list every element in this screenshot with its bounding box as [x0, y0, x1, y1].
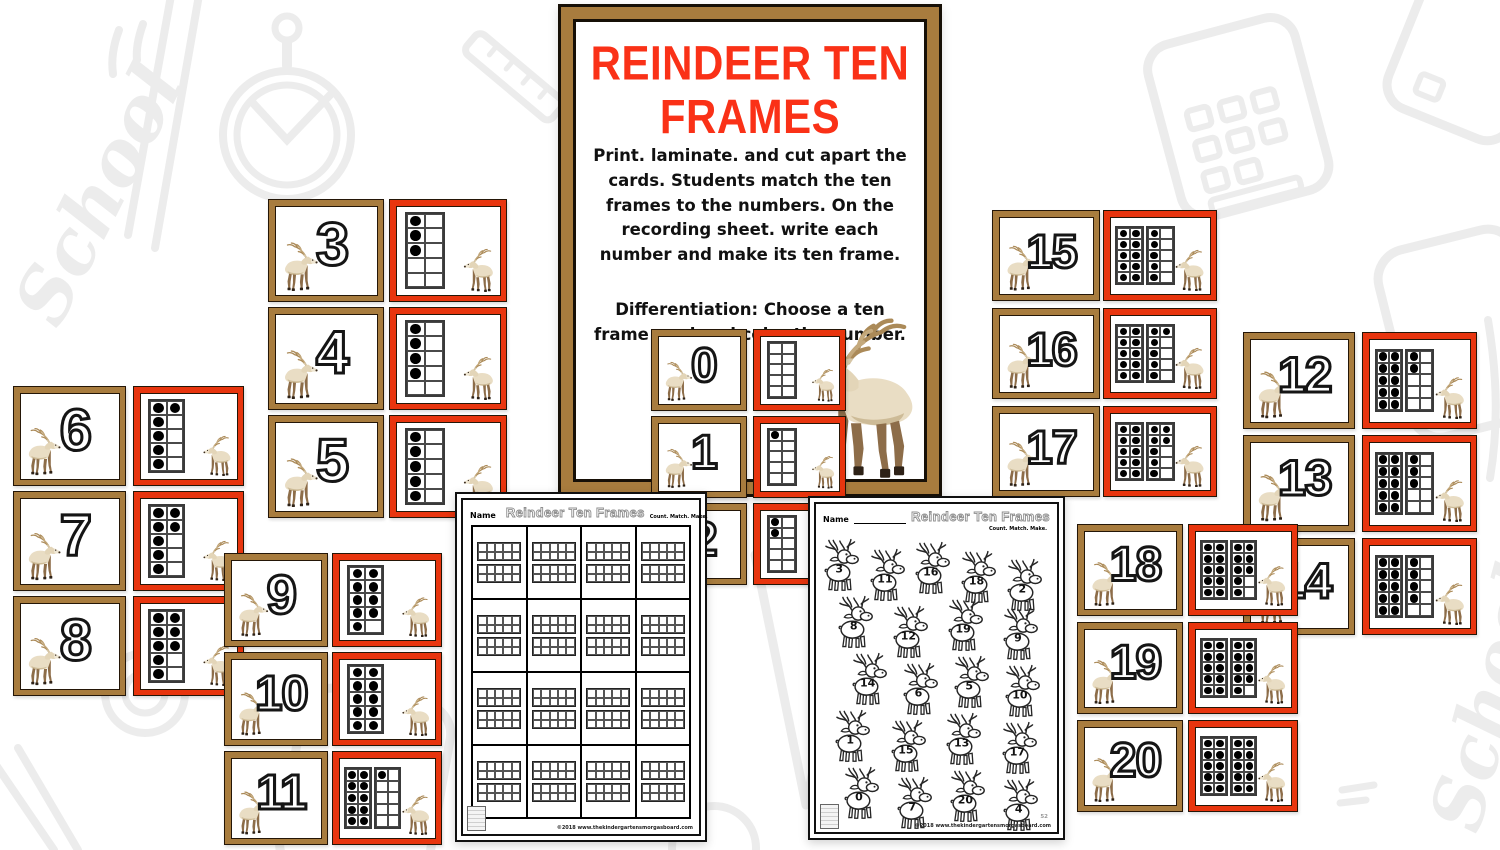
mini-frame-cell [612, 720, 620, 729]
card-group-3-4-5: 345 [268, 199, 507, 518]
frame-cell [167, 415, 184, 429]
frame-cell [1377, 477, 1389, 489]
counter-dot [1132, 459, 1140, 467]
mini-frame-cell [667, 711, 675, 720]
mini-frame-cell [566, 625, 574, 634]
mini-frame-cell [512, 711, 520, 720]
counter-dot [369, 681, 378, 690]
mini-frame-cell [659, 793, 667, 802]
ten-frame [344, 767, 372, 829]
frame-cell [167, 401, 184, 415]
counter-dot [153, 641, 163, 651]
mini-frame-cell [487, 762, 495, 771]
recording-cell [527, 745, 582, 818]
frame-cell [1202, 542, 1214, 553]
frame-cell [425, 228, 443, 243]
frame-cell [1232, 587, 1244, 598]
frame-cell [1407, 592, 1419, 604]
reindeer-number: 10 [1012, 689, 1027, 702]
frame-cell [349, 620, 365, 633]
counter-dot [1151, 426, 1159, 434]
ten-frame-card-face [1369, 339, 1471, 423]
counter-dot [1216, 664, 1224, 672]
frame-cell [349, 679, 365, 692]
ten-frame-card-face [1195, 629, 1292, 708]
frame-cell [1117, 337, 1129, 348]
ten-frame [405, 320, 445, 397]
ten-frame-card-face [1369, 545, 1471, 629]
recording-cell [472, 526, 527, 599]
frame-cell [407, 459, 425, 474]
counter-dot [1204, 773, 1212, 781]
mini-ten-frame [641, 564, 685, 583]
frame-cell [1117, 468, 1129, 479]
mini-frame-cell [495, 720, 503, 729]
frame-cell [346, 792, 358, 804]
mini-frame-cell [650, 638, 658, 647]
frame-cell [1130, 272, 1142, 283]
reindeer-number-field: 31116182812199146510115131707204 [822, 538, 1051, 819]
mini-frame-cell [558, 771, 566, 780]
mini-frame-cell [495, 565, 503, 574]
mini-frame-cell [659, 616, 667, 625]
frame-cell [407, 430, 425, 445]
counter-dot [1120, 448, 1128, 456]
mini-frame-cell [558, 638, 566, 647]
frame-cell [150, 506, 167, 520]
frame-cell [407, 489, 425, 504]
recording-worksheet-page: Name Reindeer Ten Frames Count. Match. M… [461, 498, 701, 836]
counter-dot [1150, 350, 1158, 358]
mini-frame-cell [487, 784, 495, 793]
reindeer-number: 12 [901, 630, 916, 643]
reindeer-cartoon-icon [823, 538, 867, 591]
mini-frame-cell [667, 784, 675, 793]
frame-cell [150, 639, 167, 653]
frame-cell [150, 611, 167, 625]
mini-frame-cell [503, 762, 511, 771]
frame-cell [1148, 250, 1160, 261]
frame-cell [1117, 250, 1129, 261]
frame-cell [1407, 557, 1419, 569]
reindeer-row: 31116182 [822, 538, 1051, 591]
counter-dot [1410, 570, 1418, 578]
mini-frame-cell [612, 574, 620, 583]
mini-frame-cell [550, 616, 558, 625]
mini-frame-cell [566, 698, 574, 707]
ten-frame [1115, 422, 1144, 481]
mini-frame-cell [512, 616, 520, 625]
mini-frame-cell [596, 711, 604, 720]
mini-frame-cell [604, 625, 612, 634]
mini-frame-cell [478, 698, 486, 707]
mini-frame-cell [558, 543, 566, 552]
frame-cell [150, 401, 167, 415]
card-number: 12 [1278, 346, 1332, 404]
card-number: 9 [267, 563, 297, 627]
mini-frame-cell [503, 625, 511, 634]
mini-ten-frame [586, 564, 630, 583]
counter-dot [1410, 455, 1418, 463]
mini-frame-cell [650, 698, 658, 707]
frame-cell [782, 538, 795, 549]
frame-cell [1389, 592, 1401, 604]
mini-frame-cell [487, 720, 495, 729]
frame-cell [782, 430, 795, 441]
mini-ten-frame [586, 542, 630, 561]
counter-dot [1132, 470, 1140, 478]
calculator-icon [1142, 12, 1335, 223]
mini-frame-cell [612, 711, 620, 720]
frame-cell [1130, 250, 1142, 261]
mini-ten-frame [586, 761, 630, 780]
frame-cell [150, 415, 167, 429]
frame-cell [1214, 772, 1226, 783]
counter-dot [1150, 372, 1158, 380]
mini-frame-cell [659, 711, 667, 720]
mini-frame-cell [612, 638, 620, 647]
frame-cell [1232, 651, 1244, 662]
mini-frame-cell [533, 698, 541, 707]
counter-dot [378, 771, 386, 779]
recording-cell [581, 672, 636, 745]
counter-dot [1410, 594, 1418, 602]
number-card-8: 8 [13, 596, 126, 696]
counter-dot [153, 459, 163, 469]
mini-frame-cell [587, 543, 595, 552]
reindeer-number: 17 [1010, 746, 1025, 759]
mini-frame-cell [612, 784, 620, 793]
counter-dot [1151, 339, 1159, 347]
mini-frame-cell [533, 616, 541, 625]
reindeer-photo-icon [396, 686, 434, 737]
frame-cell [167, 534, 184, 548]
frame-cell [1130, 337, 1142, 348]
mini-frame-cell [667, 543, 675, 552]
reindeer-photo-icon [1169, 439, 1209, 488]
mini-frame-cell [503, 552, 511, 561]
number-card-15: 15 [992, 210, 1100, 301]
number-card-6: 6 [13, 386, 126, 486]
product-preview: School School [0, 0, 1500, 850]
ten-frame-card-face [140, 603, 238, 690]
counter-dot [1391, 376, 1399, 384]
ten-frame [767, 341, 797, 400]
counter-dot [1234, 751, 1242, 759]
mini-frame-cell [533, 625, 541, 634]
frame-cell [1389, 604, 1401, 616]
mini-frame-cell [650, 720, 658, 729]
mini-frame-cell [503, 616, 511, 625]
mini-frame-cell [566, 784, 574, 793]
counter-dot [1410, 467, 1418, 475]
frame-cell [150, 548, 167, 562]
mini-frame-cell [650, 784, 658, 793]
mini-frame-cell [604, 565, 612, 574]
reindeer-photo-icon [1169, 341, 1209, 390]
counter-dot [1150, 274, 1158, 282]
mini-frame-cell [550, 720, 558, 729]
counter-dot [1234, 642, 1242, 650]
frame-cell [1389, 386, 1401, 398]
frame-cell [769, 560, 782, 571]
mini-frame-cell [642, 689, 650, 698]
frame-cell [1202, 587, 1214, 598]
frame-cell [1202, 576, 1214, 587]
mini-frame-cell [604, 762, 612, 771]
counter-dot [1120, 437, 1128, 445]
frame-cell [1148, 337, 1160, 348]
frame-cell [1407, 569, 1419, 581]
number-card-face: 18 [1084, 531, 1177, 610]
frame-cell [1117, 348, 1129, 359]
mini-frame-cell [533, 711, 541, 720]
mini-ten-frame [477, 783, 521, 802]
worksheet-header: Name Reindeer Ten Frames [823, 509, 1050, 524]
mini-frame-cell [533, 638, 541, 647]
mini-frame-cell [541, 771, 549, 780]
reindeer-cartoon-17: 17 [1001, 721, 1045, 774]
mini-frame-cell [587, 638, 595, 647]
mini-frame-cell [566, 565, 574, 574]
frame-cell [1214, 674, 1226, 685]
recording-cell [636, 672, 691, 745]
frame-cell [1214, 749, 1226, 760]
mini-frame-cell [512, 784, 520, 793]
frame-cell [1244, 542, 1256, 553]
mini-frame-cell [541, 616, 549, 625]
ten-frame-card-face [339, 659, 436, 740]
counter-dot [1204, 740, 1212, 748]
counter-dot [153, 403, 163, 413]
frame-cell [1202, 749, 1214, 760]
reindeer-photo-icon [197, 422, 235, 476]
mini-frame-cell [642, 638, 650, 647]
mini-frame-cell [667, 638, 675, 647]
number-card-face: 19 [1084, 629, 1177, 708]
mini-frame-cell [667, 720, 675, 729]
mini-frame-cell [512, 720, 520, 729]
ten-frame [1200, 638, 1228, 698]
mini-frame-cell [659, 574, 667, 583]
frame-cell [782, 386, 795, 397]
counter-dot [1216, 566, 1224, 574]
mini-frame-cell [667, 689, 675, 698]
ten-frame-card-face [1110, 413, 1211, 491]
frame-cell [1407, 604, 1419, 616]
mini-frame-cell [503, 698, 511, 707]
reindeer-cartoon-icon [953, 655, 997, 708]
counter-dot [1234, 653, 1242, 661]
counter-dot [1410, 558, 1418, 566]
reindeer-number: 11 [877, 573, 892, 586]
mini-frame-cell [667, 565, 675, 574]
mini-frame-cell [587, 720, 595, 729]
mini-frame-cell [503, 574, 511, 583]
counter-dot [1150, 252, 1158, 260]
mini-ten-frame [641, 637, 685, 656]
mini-frame-cell [487, 565, 495, 574]
counter-dot [1132, 361, 1140, 369]
counter-dot [360, 817, 368, 825]
school-doodle-text: School [0, 50, 201, 338]
mini-frame-cell [621, 638, 629, 647]
mini-ten-frame [477, 615, 521, 634]
mini-frame-cell [596, 543, 604, 552]
number-card-face: 13 [1250, 442, 1349, 526]
number-card-face: 17 [999, 413, 1094, 491]
frame-cell [1202, 760, 1214, 771]
mini-frame-cell [558, 616, 566, 625]
counter-dot [1132, 241, 1140, 249]
frame-cell [1232, 674, 1244, 685]
counter-dot [1234, 555, 1242, 563]
counter-dot [1132, 252, 1140, 260]
frame-cell [769, 517, 782, 528]
mini-frame-cell [675, 793, 683, 802]
mini-frame-cell [650, 616, 658, 625]
counter-dot [410, 230, 421, 241]
ten-frame-card-15 [1103, 210, 1217, 301]
number-card-face: 12 [1250, 339, 1349, 423]
mini-ten-frame [477, 710, 521, 729]
counter-dot [1410, 479, 1418, 487]
mini-frame-cell [541, 638, 549, 647]
reindeer-number: 18 [969, 575, 984, 588]
mini-frame-cell [512, 698, 520, 707]
counter-dot [360, 806, 368, 814]
counter-dot [1120, 470, 1128, 478]
counter-dot [1132, 426, 1140, 434]
reindeer-cartoon-10: 10 [1004, 664, 1048, 717]
mini-frame-cell [667, 771, 675, 780]
mini-frame-cell [675, 647, 683, 656]
frame-cell [349, 719, 365, 732]
mini-frame-cell [587, 711, 595, 720]
mini-frame-cell [503, 565, 511, 574]
frame-cell [769, 451, 782, 462]
reindeer-number: 7 [908, 801, 916, 814]
frame-cell [1389, 489, 1401, 501]
mini-frame-cell [621, 543, 629, 552]
mini-frame-cell [650, 543, 658, 552]
frame-cell [1148, 348, 1160, 359]
mini-frame-cell [550, 771, 558, 780]
mini-frame-cell [550, 574, 558, 583]
mini-frame-cell [503, 784, 511, 793]
name-line [854, 516, 906, 524]
frame-cell [1389, 580, 1401, 592]
mini-ten-frame [641, 542, 685, 561]
mini-frame-cell [478, 552, 486, 561]
mini-frame-cell [512, 625, 520, 634]
mini-frame-cell [495, 638, 503, 647]
ten-frame [1200, 736, 1228, 796]
reindeer-photo-icon [1252, 655, 1290, 704]
frame-cell [407, 243, 425, 258]
counter-dot [1379, 364, 1387, 372]
counter-dot [1132, 339, 1140, 347]
frame-cell [1130, 326, 1142, 337]
frame-cell [1377, 592, 1389, 604]
counter-dot [1216, 653, 1224, 661]
counter-dot [410, 461, 421, 472]
counter-dot [1120, 339, 1128, 347]
frame-cell [1389, 398, 1401, 410]
recording-cell [581, 745, 636, 818]
frame-cell [782, 549, 795, 560]
frame-cell [425, 322, 443, 337]
mini-frame-cell [566, 552, 574, 561]
reindeer-photo-icon [1429, 470, 1469, 522]
number-card-0: 0 [651, 329, 747, 411]
frame-cell [358, 781, 370, 793]
ten-frame-card-18 [1188, 524, 1298, 616]
mini-frame-cell [487, 638, 495, 647]
card-number: 17 [1026, 419, 1076, 474]
frame-cell [1232, 542, 1244, 553]
counter-dot [1151, 230, 1159, 238]
counter-dot [1234, 773, 1242, 781]
frame-cell [1389, 557, 1401, 569]
mini-frame-cell [650, 647, 658, 656]
frame-cell [358, 769, 370, 781]
mini-frame-cell [512, 689, 520, 698]
mini-frame-cell [587, 784, 595, 793]
mini-frame-cell [642, 647, 650, 656]
counter-dot [1391, 352, 1399, 360]
frame-cell [425, 444, 443, 459]
worksheet-footer: ©2018 www.thekindergartensmorgasboard.co… [915, 823, 1051, 829]
worksheet-header: Name Reindeer Ten Frames Count. Match. M… [470, 505, 692, 520]
frame-cell [782, 375, 795, 386]
counter-dot [369, 569, 378, 578]
phone-doodle-icon [1379, 0, 1500, 149]
counter-dot [1151, 437, 1159, 445]
ten-frame-card-20 [1188, 720, 1298, 812]
frame-cell [167, 457, 184, 471]
counter-dot [410, 368, 421, 379]
frame-cell [1377, 466, 1389, 478]
mini-frame-cell [503, 771, 511, 780]
counter-dot [1379, 594, 1387, 602]
frame-cell [1377, 557, 1389, 569]
mini-frame-cell [612, 565, 620, 574]
counter-dot [153, 417, 163, 427]
worksheet-title: Reindeer Ten Frames [506, 505, 645, 520]
counter-dot [353, 622, 362, 631]
mini-frame-cell [550, 625, 558, 634]
mini-frame-cell [587, 574, 595, 583]
mini-frame-cell [621, 771, 629, 780]
frame-cell [349, 593, 365, 606]
ten-frame [148, 504, 185, 579]
counter-dot [1379, 376, 1387, 384]
ten-frame-card-face [140, 393, 238, 480]
mini-frame-cell [587, 689, 595, 698]
counter-dot [1234, 566, 1242, 574]
number-card-11: 11 [224, 751, 328, 845]
reindeer-cartoon-19: 19 [947, 598, 991, 651]
counter-dot [1391, 558, 1399, 566]
mini-frame-cell [675, 762, 683, 771]
frame-cell [407, 273, 425, 288]
counter-dot [353, 721, 362, 730]
mini-frame-cell [621, 762, 629, 771]
mini-frame-cell [503, 647, 511, 656]
recording-cell [527, 599, 582, 672]
mini-ten-frame [586, 637, 630, 656]
